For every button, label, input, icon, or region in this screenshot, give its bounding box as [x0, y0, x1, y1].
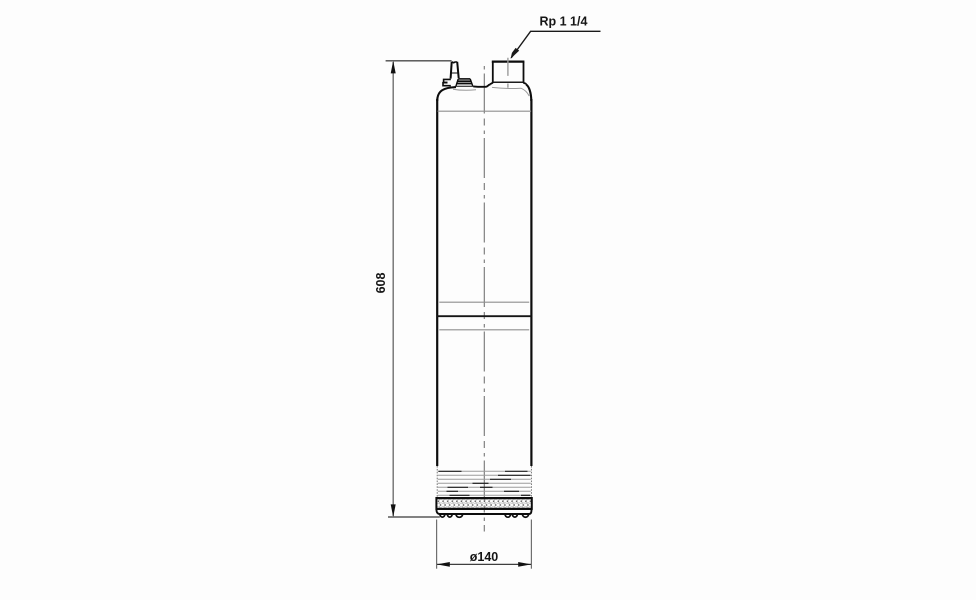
svg-text:Rp 1 1/4: Rp 1 1/4	[540, 15, 588, 29]
svg-text:608: 608	[374, 272, 388, 293]
svg-text:ø140: ø140	[470, 550, 499, 564]
